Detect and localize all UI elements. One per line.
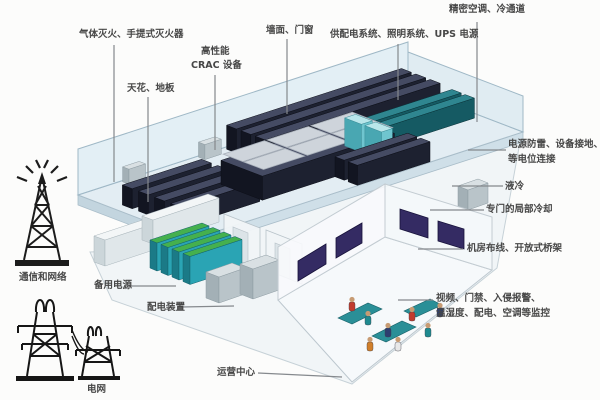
datacenter-diagram: 气体灭火、手提式灭火器 天花、地板 高性能 CRAC 设备 墙面、门窗 供配电系… [0, 0, 600, 400]
datacenter-illustration [0, 0, 600, 400]
transmission-pylon-icon [16, 300, 120, 381]
radio-tower-icon [15, 160, 69, 266]
